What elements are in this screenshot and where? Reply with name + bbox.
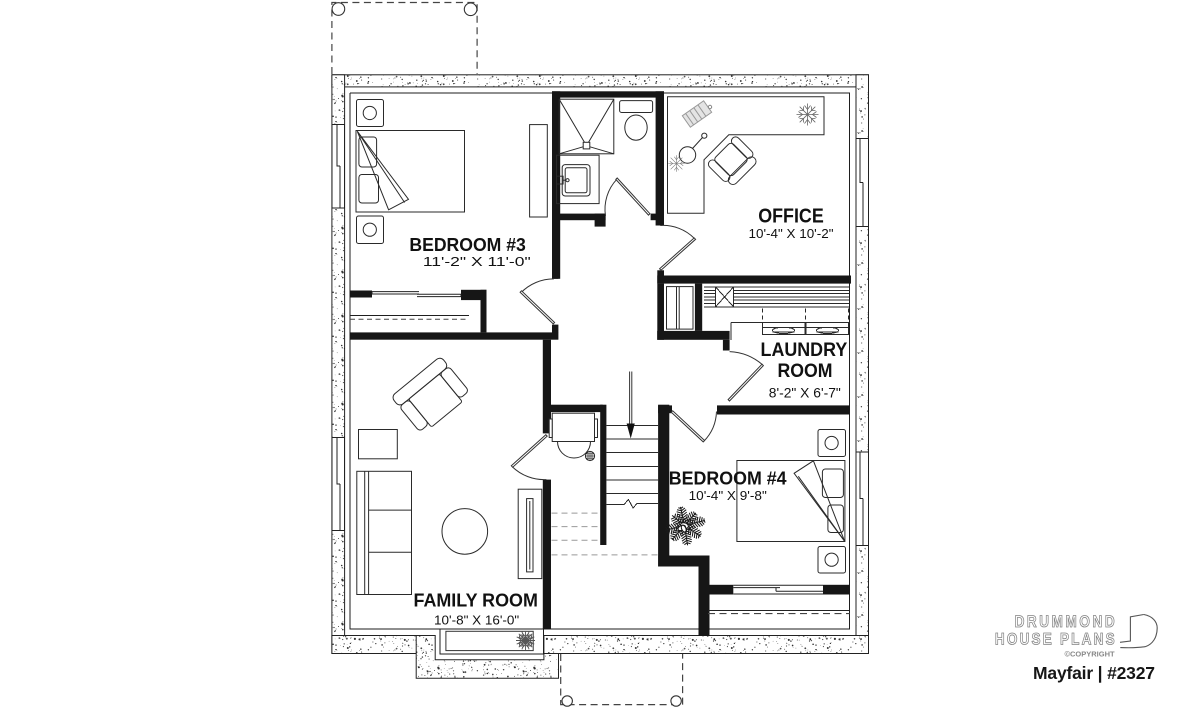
svg-text:LAUNDRY: LAUNDRY [761,340,848,361]
svg-text:HOUSE PLANS: HOUSE PLANS [995,630,1115,649]
svg-text:BEDROOM #3: BEDROOM #3 [409,234,526,255]
svg-text:OFFICE: OFFICE [758,205,824,227]
svg-text:FAMILY ROOM: FAMILY ROOM [414,591,538,611]
svg-text:10'-8" X 16'-0": 10'-8" X 16'-0" [434,612,520,627]
svg-text:©COPYRIGHT: ©COPYRIGHT [1064,650,1115,659]
svg-text:10'-4" X 9'-8": 10'-4" X 9'-8" [689,488,767,503]
svg-text:Mayfair | #2327: Mayfair | #2327 [1033,663,1155,683]
svg-text:8'-2" X 6'-7": 8'-2" X 6'-7" [769,384,841,400]
svg-text:BEDROOM #4: BEDROOM #4 [669,468,787,488]
svg-text:11'-2" X 11'-0": 11'-2" X 11'-0" [423,254,531,269]
svg-text:10'-4" X 10'-2": 10'-4" X 10'-2" [749,226,834,241]
svg-text:ROOM: ROOM [778,361,833,382]
